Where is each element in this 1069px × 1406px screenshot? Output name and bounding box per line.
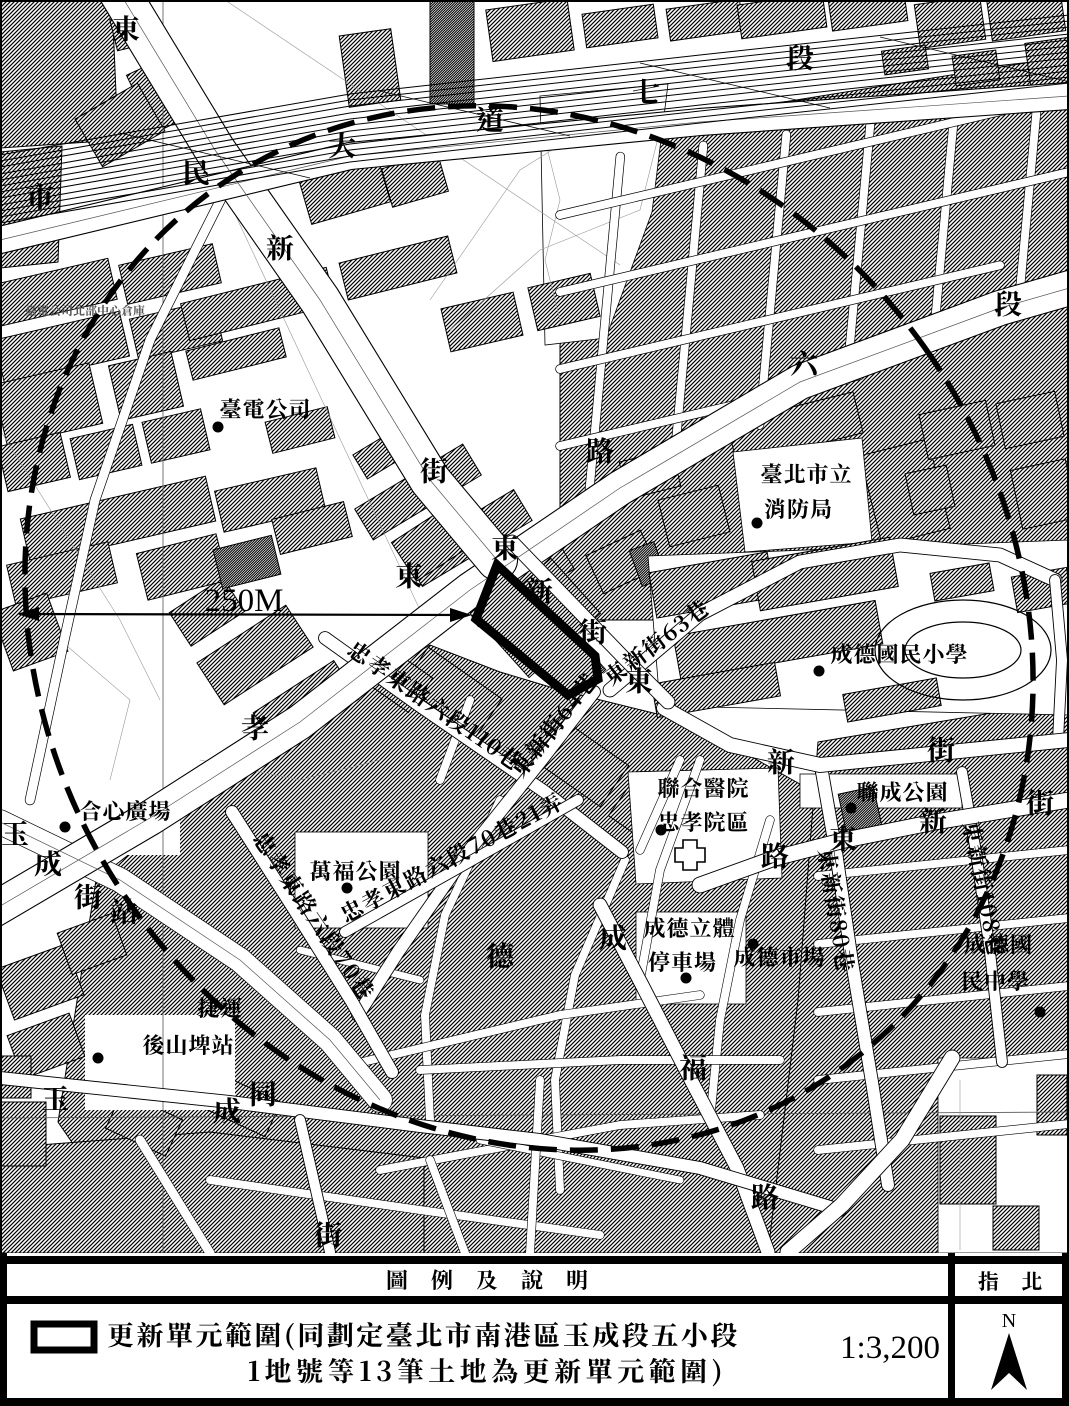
- svg-text:N: N: [1002, 1310, 1016, 1332]
- svg-text:250M: 250M: [205, 583, 284, 619]
- svg-text:1:3,200: 1:3,200: [840, 1330, 940, 1366]
